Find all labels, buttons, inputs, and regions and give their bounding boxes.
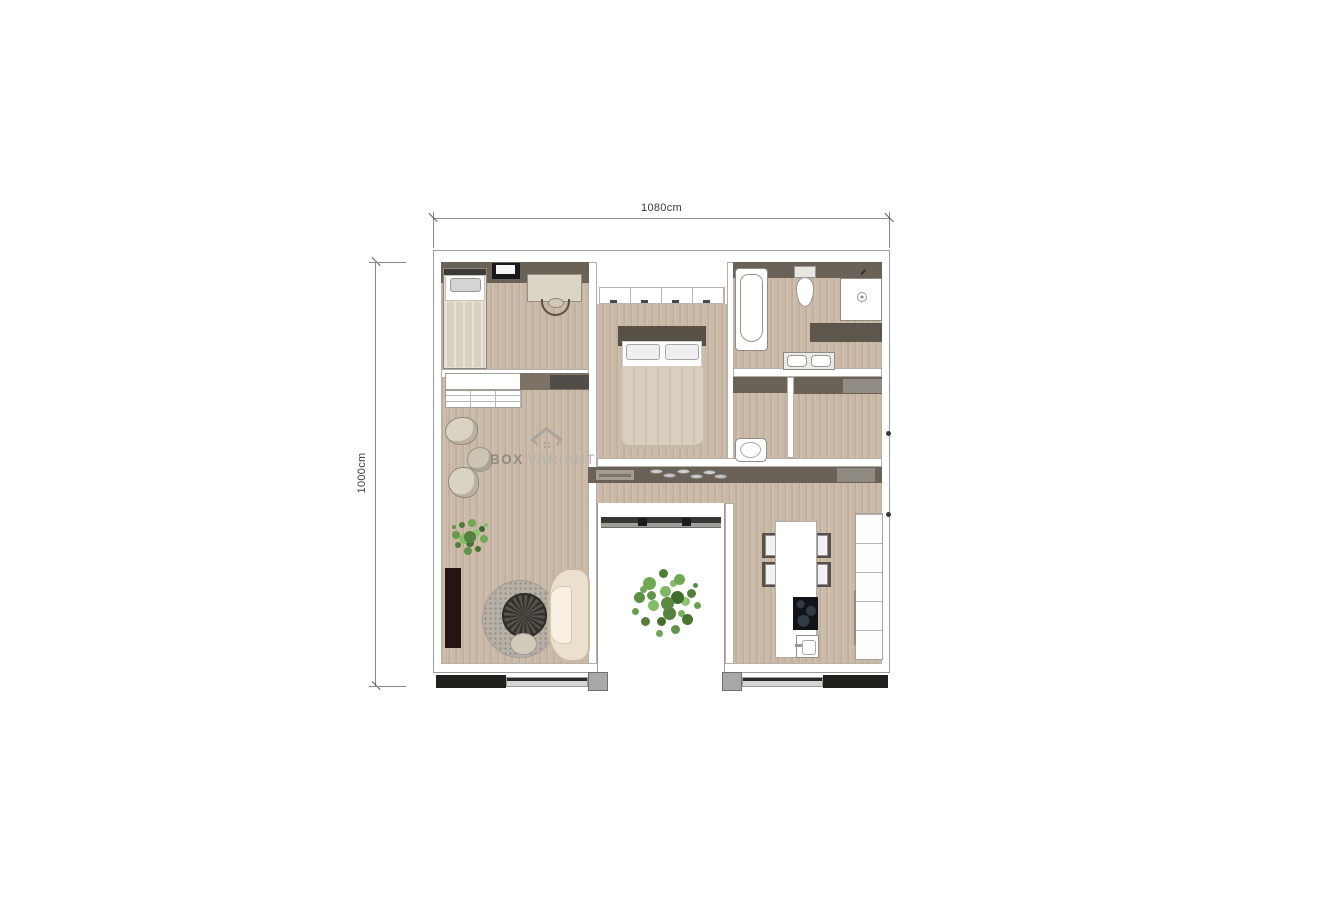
watermark-text-light: VARIANT — [528, 452, 596, 467]
chair-seat — [817, 535, 828, 556]
storage-cabinet-light — [843, 379, 882, 393]
vanity-counter-icon — [810, 323, 882, 342]
top-dim-extension-right — [889, 219, 890, 248]
side-table-icon — [510, 633, 537, 655]
armchair-icon — [448, 467, 479, 498]
wc-toilet-icon — [735, 438, 767, 462]
sliding-door-panel-left — [436, 675, 506, 688]
entry-door-knob — [886, 512, 891, 517]
bathtub-icon — [735, 268, 768, 351]
wall-courtyard-right — [725, 503, 734, 664]
dining-chair-icon — [817, 562, 831, 587]
watermark-text-bold: BOX — [490, 452, 524, 467]
wc-wall-band — [733, 377, 787, 393]
kitchen-cabinets-icon — [855, 513, 883, 660]
shoe-icon — [677, 469, 690, 474]
wc-toilet-bowl — [740, 442, 761, 458]
kitchen-sink-icon — [796, 635, 819, 658]
bed-pillow — [450, 278, 481, 292]
plant-icon — [464, 531, 476, 543]
floor-plan-canvas: { "dimension_labels": { "top": "1080cm",… — [0, 0, 1320, 908]
shoe-icon — [690, 474, 703, 479]
dining-chair-icon — [762, 562, 776, 587]
watermark-text: BOX VARIANT — [463, 452, 623, 467]
shower-drain — [857, 292, 867, 302]
cooktop-icon — [793, 597, 818, 630]
wall-wc-storage — [787, 377, 794, 458]
shoe-bench-slat — [599, 474, 631, 477]
bed-pillow — [626, 344, 660, 360]
tv-screen — [496, 265, 515, 274]
washbasin-left — [787, 355, 807, 367]
shoe-icon — [650, 469, 663, 474]
bathtub-inner — [740, 274, 763, 342]
sofa-seat — [550, 586, 572, 644]
left-dim-extension-top — [376, 262, 406, 263]
shower-fixture-icon — [861, 270, 870, 277]
wardrobe-handle — [672, 300, 679, 303]
sliding-door-rail-left — [506, 677, 588, 687]
single-bed-icon — [443, 268, 487, 369]
shelving-unit-icon — [445, 390, 522, 408]
cabinet-handle-rail — [854, 590, 856, 645]
top-dimension-label: 1080cm — [433, 202, 890, 214]
sliding-door-rail-right — [742, 677, 823, 687]
left-dimension-line — [375, 262, 376, 686]
sliding-door-jamb-right — [722, 672, 742, 691]
shoe-icon — [714, 474, 727, 479]
courtyard-door-rail — [601, 523, 721, 528]
living-cabinet-dark — [550, 375, 589, 389]
top-dim-extension-left — [433, 219, 434, 248]
watermark-house-window-dots — [543, 441, 551, 449]
courtyard-door-handle-left — [638, 518, 647, 526]
double-bed-blanket — [621, 366, 703, 448]
dining-chair-icon — [762, 533, 776, 558]
doormat-icon — [837, 468, 875, 482]
sink-basin — [802, 640, 816, 655]
washbasin-right — [811, 355, 831, 367]
top-dimension-line — [433, 218, 890, 219]
sliding-door-jamb-left — [588, 672, 608, 691]
wardrobe-handle — [610, 300, 617, 303]
tv-cabinet-icon — [445, 568, 461, 648]
wardrobe-handle — [703, 300, 710, 303]
sink-tap — [795, 644, 802, 647]
double-washbasin-icon — [783, 352, 835, 370]
courtyard-door-handle-right — [682, 518, 691, 526]
sofa-icon — [548, 568, 590, 662]
courtyard — [597, 503, 725, 673]
wardrobe-handle — [641, 300, 648, 303]
tv-icon — [492, 263, 520, 279]
bed-pillow — [665, 344, 699, 360]
coffee-table-icon — [502, 593, 547, 638]
shower-icon — [840, 278, 882, 321]
bed-blanket — [445, 302, 485, 367]
chair-seat — [817, 564, 828, 585]
wall-master-bath — [727, 262, 734, 468]
left-dimension-label: 1000cm — [356, 438, 368, 508]
shoe-bench-icon — [595, 469, 635, 481]
sliding-door-panel-right — [823, 675, 888, 688]
courtyard-tree-icon — [661, 597, 674, 610]
entry-door-knob — [886, 431, 891, 436]
desk-chair-seat — [548, 298, 564, 308]
shoe-icon — [663, 473, 676, 478]
left-dim-extension-bottom — [376, 686, 406, 687]
armchair-icon — [445, 417, 478, 445]
dining-chair-icon — [817, 533, 831, 558]
shelving-top — [445, 373, 522, 390]
